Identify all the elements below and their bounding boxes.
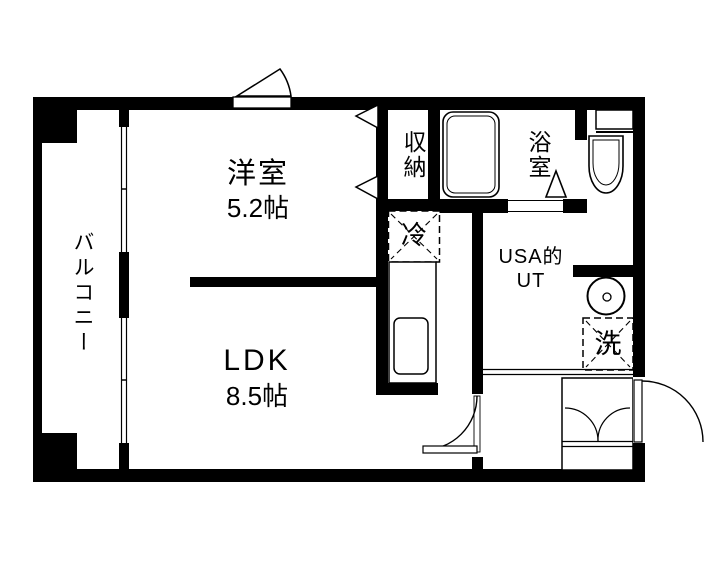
utility-label: USA的 UT [483, 246, 579, 293]
balcony-label: バルコニー [67, 231, 97, 356]
bathroom-label: 浴室 [521, 130, 555, 180]
vent-window-swing-icon [237, 69, 291, 96]
ldk-name: LDK [188, 344, 326, 379]
ldk-size: 8.5帖 [188, 382, 326, 412]
washer-label: 洗 [583, 329, 633, 360]
closet-door-icon [356, 176, 378, 199]
toilet-icon [589, 110, 633, 193]
floor-plan-symbols [0, 0, 720, 576]
utility-line2: UT [483, 270, 579, 293]
washbasin-icon [588, 278, 625, 315]
storage-label: 収納 [396, 130, 430, 180]
western-room-size: 5.2帖 [193, 194, 323, 224]
floor-plan: 洋室 5.2帖 LDK 8.5帖 バルコニー 収納 浴室 冷 洗 USA的 UT [0, 0, 720, 576]
western-room-name: 洋室 [193, 158, 323, 191]
western-room-label: 洋室 5.2帖 [193, 158, 323, 224]
bathtub-icon [443, 112, 499, 197]
kitchen-counter-icon [389, 262, 436, 383]
lower-sliding-window-icon [119, 318, 129, 443]
entrance-door-icon [633, 377, 703, 443]
refrigerator-label: 冷 [388, 221, 440, 251]
utility-line1: USA的 [483, 246, 579, 269]
vent-window-sash-icon [233, 97, 291, 108]
ldk-door-icon [423, 394, 483, 457]
bath-doorway [508, 199, 563, 213]
upper-sliding-window-icon [119, 127, 129, 252]
kitchen-sink-icon [394, 318, 428, 374]
closet-door-icon [356, 105, 378, 128]
ldk-label: LDK 8.5帖 [188, 344, 326, 411]
entrance-cabinet-icon [562, 378, 633, 470]
